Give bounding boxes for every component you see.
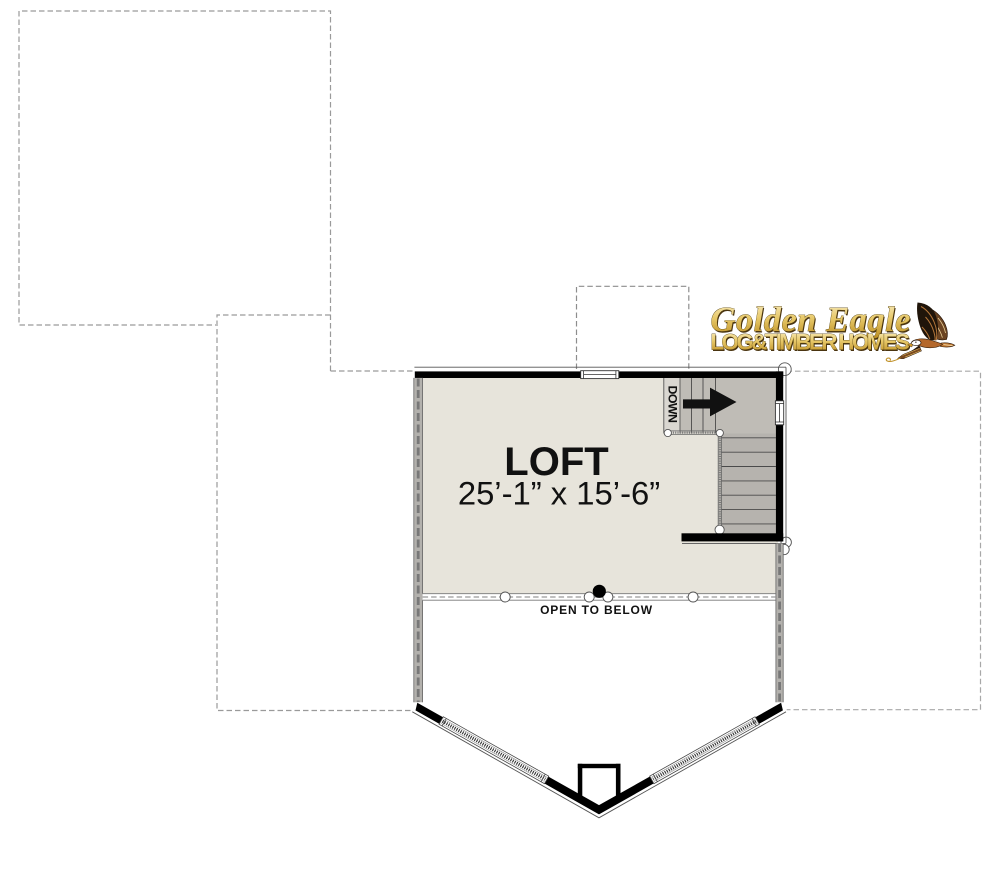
svg-text:DOWN: DOWN (665, 386, 679, 424)
svg-text:LOG&TIMBER HOMES: LOG&TIMBER HOMES (711, 330, 910, 355)
svg-text:25’-1” x 15’-6”: 25’-1” x 15’-6” (458, 475, 660, 512)
svg-text:OPEN TO BELOW: OPEN TO BELOW (540, 603, 653, 617)
